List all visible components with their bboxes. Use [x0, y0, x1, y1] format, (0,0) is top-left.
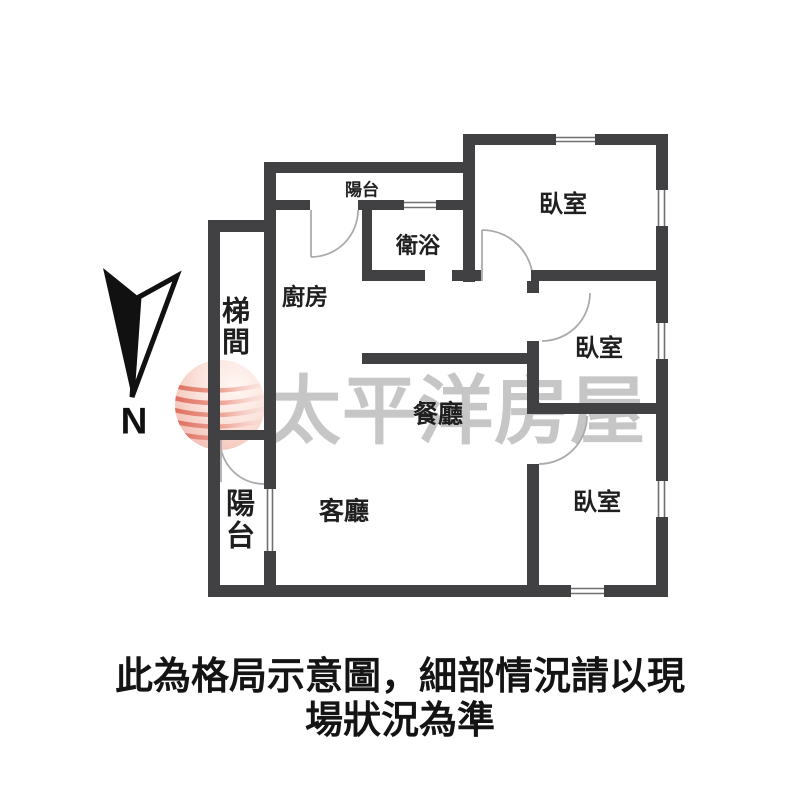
window-cap — [604, 585, 612, 597]
room-label-bathroom: 衛浴 — [396, 235, 440, 257]
floor-plan-image: 太平洋房屋 — [0, 0, 800, 800]
window-cap — [656, 182, 668, 190]
wall-segment — [463, 134, 475, 282]
wall-segment — [362, 270, 425, 281]
window-cap — [548, 134, 556, 145]
room-label-living-room: 客廳 — [319, 500, 369, 525]
window-cap — [656, 226, 668, 234]
room-label-kitchen: 廚房 — [282, 286, 328, 309]
north-arrow-right-blade — [132, 276, 177, 397]
window-cap — [264, 482, 276, 489]
wall-segment — [362, 210, 372, 280]
window-cap — [656, 473, 668, 481]
wall-segment — [656, 234, 668, 315]
wall-segment — [443, 200, 463, 210]
wall-segment — [527, 464, 539, 585]
wall-segment — [463, 134, 548, 145]
wall-segment — [276, 200, 310, 210]
wall-segment — [527, 403, 656, 414]
disclaimer-line-1: 此為格局示意圖，細部情況請以現 — [0, 658, 800, 696]
door-arc-bedroom-middle — [542, 293, 590, 341]
room-label-dining-room: 餐廳 — [413, 403, 463, 428]
room-label-bedroom-top: 臥室 — [539, 193, 587, 217]
wall-segment — [264, 162, 475, 173]
room-label-bedroom-bottom: 臥室 — [573, 491, 621, 515]
window-cap — [656, 315, 668, 323]
wall-segment — [656, 367, 668, 473]
disclaimer-line-2: 場狀況為準 — [0, 702, 800, 740]
wall-segment — [208, 220, 220, 597]
window-cap — [563, 585, 571, 597]
room-label-bedroom-middle: 臥室 — [575, 337, 623, 361]
window-cap — [397, 200, 404, 210]
room-label-balcony-left: 陽台 — [223, 488, 252, 552]
window-cap — [436, 200, 443, 210]
wall-segment — [362, 353, 527, 364]
wall-segment — [527, 341, 539, 403]
window-cap — [595, 134, 603, 145]
room-label-stairwell: 梯間 — [220, 296, 248, 358]
wall-segment — [527, 281, 539, 293]
wall-segment — [210, 585, 563, 597]
wall-segment — [208, 430, 276, 440]
window-cap — [656, 359, 668, 367]
north-label: N — [121, 403, 148, 440]
wall-segment — [656, 134, 668, 182]
walls — [208, 134, 668, 597]
north-arrow-icon — [103, 268, 177, 397]
window-cap — [264, 551, 276, 558]
door-arc-bedroom-top — [482, 230, 533, 281]
room-label-balcony-top: 陽台 — [345, 182, 379, 199]
wall-segment — [531, 270, 656, 281]
wall-segment — [358, 200, 397, 210]
door-arc-balcony-top — [311, 210, 358, 257]
wall-segment — [452, 270, 481, 281]
wall-segment — [612, 585, 668, 597]
window-cap — [656, 517, 668, 525]
